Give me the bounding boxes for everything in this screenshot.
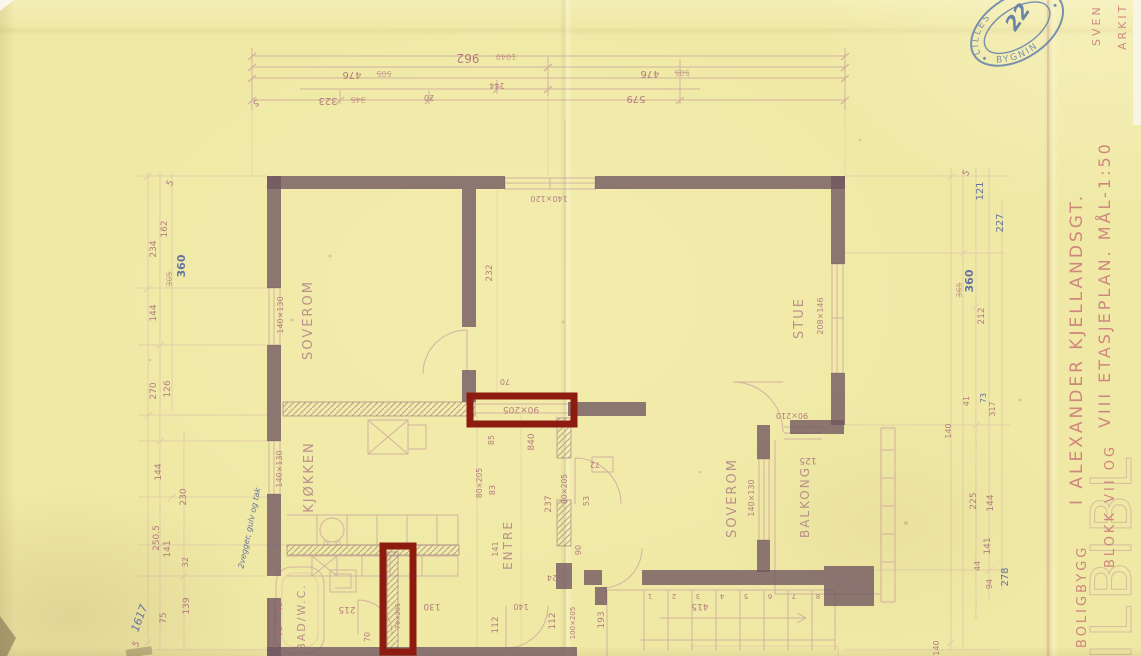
highlight-annotations	[383, 396, 574, 652]
dim-label: 94	[985, 579, 994, 589]
dim-label: 140	[513, 602, 528, 611]
stair-number: 6	[767, 592, 772, 600]
left-dimension-lines	[138, 172, 287, 650]
window-label: 140×120	[530, 194, 567, 203]
dim-label: 225	[969, 492, 979, 509]
dim-label: 126	[163, 380, 173, 397]
dim-label: 139	[182, 597, 192, 614]
pencil-note: 2vegger, gulv og tak	[237, 487, 263, 570]
dim-label: 53	[582, 496, 591, 506]
architect-title-fragment: ARKIT	[1116, 3, 1129, 50]
dim-label: 415	[691, 601, 708, 611]
dim-label: 162	[160, 220, 170, 237]
stair-number: 5	[744, 592, 748, 600]
dim-label: 212	[977, 307, 987, 324]
dim-label: 476	[640, 68, 659, 79]
room-label-kjokken: KJØKKEN	[302, 441, 317, 513]
dim-label: 41	[962, 396, 971, 406]
dim-label: 193	[597, 611, 607, 628]
pencil-dim-label: 360	[175, 254, 188, 277]
dim-label: 44	[973, 561, 982, 571]
struck-dim-label: 505	[376, 69, 391, 78]
left-dimension-labels: 5 234 162 360 305 144 270 126 144 230 25…	[129, 179, 263, 650]
dim-label: 237	[544, 495, 554, 512]
room-label-soverom2: SOVEROM	[725, 458, 740, 538]
pencil-dim-label: 278	[1000, 567, 1011, 586]
stair-number: 8	[816, 592, 820, 600]
scanned-floorplan-sheet: 962 1040 476 505 476 505 144 579 20 323 …	[0, 0, 1141, 656]
struck-dim-label: 505	[674, 68, 689, 77]
dim-label: 215	[338, 604, 355, 614]
door-label: 100×205	[569, 607, 577, 640]
stair-number: 4	[719, 592, 724, 600]
dim-label: 70	[363, 632, 372, 642]
dim-label: 72	[275, 626, 284, 636]
dim-label: 140	[944, 423, 953, 438]
dim-label: 144	[489, 81, 504, 90]
dim-label: 476	[342, 69, 361, 80]
pencil-dim-label: 121	[975, 181, 986, 200]
dim-label: 40	[275, 602, 284, 612]
dim-label: 579	[626, 93, 645, 104]
dim-label: 270	[149, 382, 159, 399]
room-label-stue: STUE	[792, 297, 807, 339]
stamp-handwritten-number: 22	[1000, 0, 1036, 35]
door-label-highlighted: 90×205	[503, 404, 539, 414]
dim-label: 140	[932, 640, 941, 655]
dim-label: 141	[163, 540, 173, 557]
stair-number: 7	[792, 592, 796, 600]
title-line2-main: VIII ETASJEPLAN. MÅL-1:50	[1095, 141, 1114, 428]
dim-label: 962	[457, 51, 480, 65]
room-label-balkong: BALKONG	[798, 466, 812, 538]
dim-label: 144	[149, 304, 159, 321]
dim-label: 90	[574, 545, 583, 555]
dim-label: 112	[491, 616, 501, 633]
window-label: 140×130	[276, 296, 285, 333]
window-label: 140×130	[747, 479, 756, 516]
dim-label: 144	[154, 463, 164, 480]
room-label-bad-wc: BAD/W.C.	[295, 583, 308, 651]
dim-label: 72	[590, 460, 600, 469]
watermark-outline-letters: ILBIBL	[1080, 452, 1141, 656]
pencil-dim-label: 227	[995, 213, 1006, 232]
room-label-entre: ENTRE	[501, 520, 515, 570]
struck-dim-label: 305	[165, 271, 174, 286]
door-label-highlighted: 70×205	[394, 603, 402, 629]
dim-label: 144	[986, 494, 996, 511]
dim-label: 32	[181, 557, 190, 567]
stair-tread-numbers: 1 2 3 4 5 6 7 8	[648, 592, 820, 600]
dim-label: 141	[491, 541, 500, 556]
pencil-dim-label: 73	[979, 393, 988, 403]
dim-label: 130	[423, 601, 440, 611]
dim-label: 20	[424, 93, 434, 102]
dim-label: 75	[159, 612, 169, 623]
room-labels: SOVEROM STUE KJØKKEN ENTRE SOVEROM BALKO…	[295, 280, 812, 651]
stair-number: 3	[696, 592, 700, 600]
door-label: 90×210	[776, 411, 808, 420]
architect-name-fragment: SVEN	[1090, 4, 1103, 46]
dim-label: 840	[527, 433, 537, 450]
door-label: 80×205	[560, 474, 569, 504]
dim-label: 70	[500, 377, 510, 386]
dim-label: 234	[149, 240, 159, 257]
top-dimension-labels: 962 1040 476 505 476 505 144 579 20 323 …	[251, 51, 689, 108]
dim-label: 5	[251, 96, 260, 107]
pencil-dim-label: 360	[963, 269, 976, 292]
door-label: 80×205	[475, 468, 484, 498]
stair-number: 2	[672, 592, 676, 600]
right-dimension-labels: 5 121 227 360 365 212 41 73 317 140 225 …	[932, 169, 1011, 656]
struck-dim-label: 345	[350, 95, 365, 104]
dim-label: 317	[988, 401, 997, 416]
dim-label: 141	[983, 537, 993, 554]
dim-label: 232	[485, 264, 495, 281]
dim-label: 323	[318, 95, 337, 106]
floorplan-drawing: 962 1040 476 505 476 505 144 579 20 323 …	[0, 0, 1141, 656]
pencil-dim-label: 1617	[129, 603, 151, 634]
dim-label: 112	[548, 612, 558, 629]
room-label-soverom1: SOVEROM	[301, 280, 316, 360]
stair-number: 1	[648, 592, 652, 600]
dim-label: 230	[179, 488, 189, 505]
dim-label: 5	[165, 179, 177, 189]
municipal-stamp: LILLES BYGNIN 22	[957, 0, 1077, 82]
dim-label: 250.5	[152, 525, 162, 551]
dim-label: 24	[547, 573, 557, 582]
window-label: 140×130	[275, 450, 284, 487]
struck-dim-label: 1040	[496, 52, 516, 61]
window-label: 208×146	[816, 297, 825, 334]
dim-label: 85	[487, 435, 496, 445]
struck-dim-label: 365	[955, 282, 964, 297]
dim-label: 125	[799, 455, 816, 465]
title-block: BOLIGBYGG I ALEXANDER KJELLANDSGT. BLOKK…	[1067, 3, 1141, 656]
dim-label: 83	[488, 485, 497, 495]
